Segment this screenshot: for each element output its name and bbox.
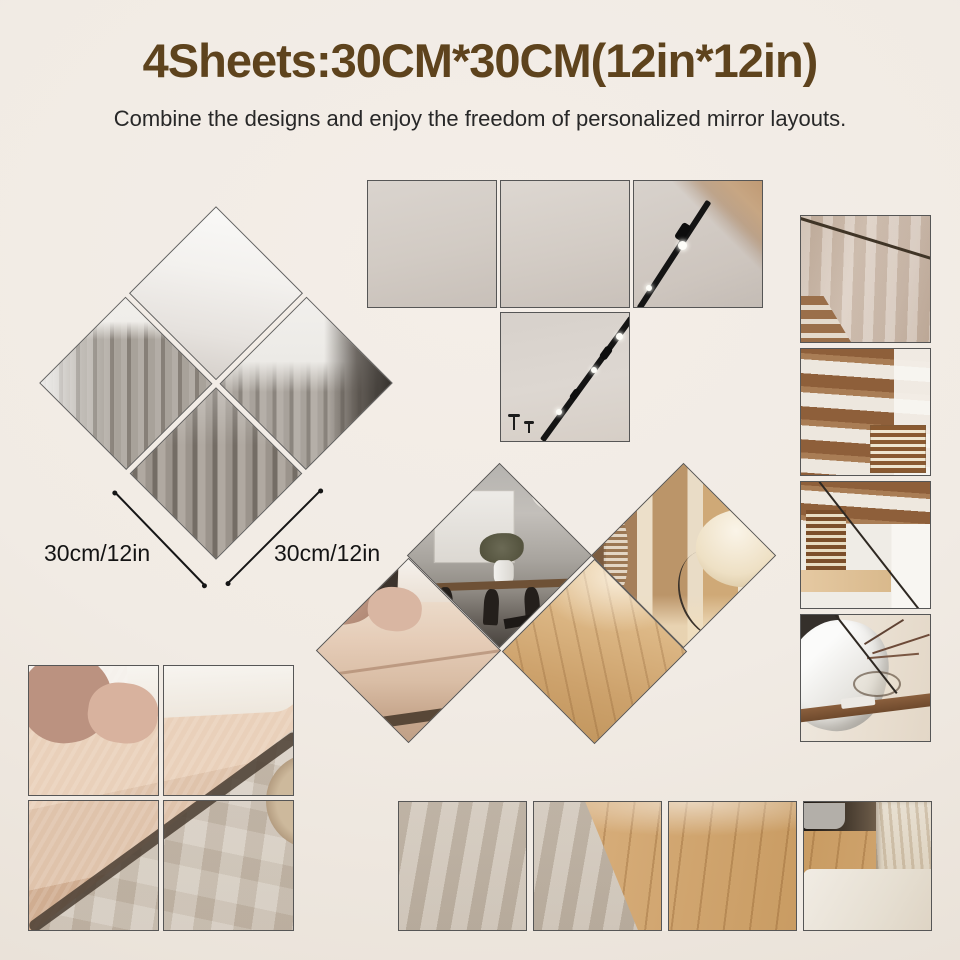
arrangement-diamond-grid bbox=[39, 206, 393, 560]
gray-bench bbox=[803, 803, 845, 829]
floor-lamp-silhouette bbox=[513, 416, 515, 430]
window-blinds bbox=[806, 510, 846, 572]
arrangement-horizontal-strip bbox=[398, 801, 932, 931]
glass-bowl bbox=[853, 671, 901, 697]
sofa-shadow bbox=[316, 698, 501, 739]
floor-lamp-silhouette bbox=[508, 414, 520, 417]
mirror-tile-stair-wall bbox=[800, 215, 931, 343]
handrail-line bbox=[800, 216, 931, 260]
chair-silhouette bbox=[483, 588, 500, 625]
marble-floor bbox=[803, 869, 932, 931]
mirror-tile-ceiling-right bbox=[633, 180, 763, 308]
tile-gap bbox=[28, 795, 294, 800]
pendant-lamp bbox=[531, 468, 577, 510]
mirror-tile-frame bbox=[398, 801, 527, 931]
light-dot bbox=[646, 285, 652, 291]
mirror-tile-ceiling-mid bbox=[500, 180, 630, 308]
light-dot bbox=[591, 367, 597, 373]
product-infographic: 4Sheets:30CM*30CM(12in*12in) Combine the… bbox=[0, 0, 960, 960]
dimension-label-right: 30cm/12in bbox=[274, 540, 380, 567]
tile-gap bbox=[662, 801, 668, 931]
mirror-tile-sofa-side bbox=[800, 614, 931, 742]
page-subtitle: Combine the designs and enjoy the freedo… bbox=[0, 106, 960, 132]
page-title: 4Sheets:30CM*30CM(12in*12in) bbox=[0, 33, 960, 88]
pendant-cord bbox=[554, 463, 556, 471]
mirror-tile-floating-stairs bbox=[800, 348, 931, 476]
shelf-band bbox=[801, 570, 891, 592]
track-spotlight bbox=[599, 345, 614, 361]
track-light-bar bbox=[637, 200, 712, 308]
arrangement-square-grid bbox=[28, 665, 294, 931]
white-cabinet bbox=[876, 801, 932, 875]
mirror-tile-ceiling-bottom bbox=[500, 312, 630, 442]
mirror-tile-stairs-lower bbox=[800, 481, 931, 609]
window-blinds bbox=[870, 425, 926, 473]
stair-steps-corner bbox=[801, 296, 851, 342]
plant-bouquet bbox=[480, 532, 524, 562]
side-table-edge bbox=[266, 753, 294, 849]
tile-gap bbox=[797, 801, 803, 931]
dimension-label-left: 30cm/12in bbox=[44, 540, 150, 567]
floor-lamp-silhouette bbox=[524, 421, 534, 424]
mirror-tile-ceiling-left bbox=[367, 180, 497, 308]
seat-seam bbox=[316, 649, 501, 679]
tile-gap bbox=[527, 801, 533, 931]
light-dot bbox=[616, 333, 623, 340]
floor-lamp-silhouette bbox=[528, 423, 530, 433]
light-dot bbox=[556, 409, 562, 415]
light-dot bbox=[678, 241, 687, 250]
